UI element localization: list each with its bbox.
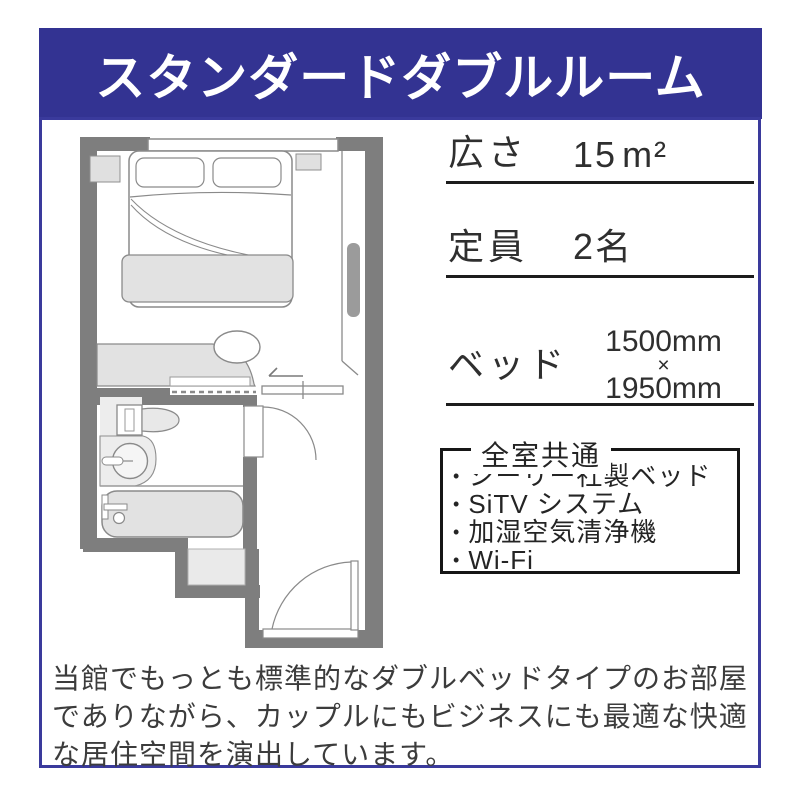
room-info-card: スタンダードダブルルーム <box>0 0 800 800</box>
list-item: •加湿空気清浄機 <box>451 518 737 546</box>
wall-hall-left <box>245 549 259 632</box>
closet-niche <box>188 549 245 585</box>
entrance-door-swing-arc <box>272 562 351 629</box>
spec-row-capacity: 定員 2名 <box>446 230 754 278</box>
bed-foot-cover <box>122 255 293 302</box>
chair <box>214 331 260 363</box>
pillow-left <box>136 158 204 187</box>
wall-right <box>365 137 383 648</box>
wall-bath-bottom <box>83 538 188 552</box>
entrance-door-sill <box>263 629 358 638</box>
toilet-lid-detail <box>125 409 134 431</box>
entrance-door-panel <box>351 561 358 630</box>
common-features-title: 全室共通 <box>471 434 611 474</box>
bathtub <box>102 491 243 537</box>
bed-length: 1950mm <box>586 375 741 403</box>
capacity-value: 2名 <box>573 218 633 270</box>
bathtub-drain <box>114 513 125 524</box>
sink <box>100 436 156 486</box>
window <box>148 139 338 151</box>
closet-door-handle <box>347 243 360 317</box>
description-line: な居住空間を演出しています。 <box>52 736 758 774</box>
double-bed <box>122 151 293 307</box>
nightstand-right <box>296 154 321 170</box>
nightstand-left <box>90 156 120 182</box>
area-value: 15 m² <box>573 134 668 176</box>
toilet-bowl <box>142 408 179 431</box>
sink-faucet <box>102 457 123 465</box>
bed-label: ベッド <box>448 336 568 388</box>
wall-bath-right-lower <box>243 457 257 552</box>
toilet <box>117 405 179 435</box>
bullet-icon: • <box>453 490 460 518</box>
description-line: でありながら、カップルにもビジネスにも最適な快適 <box>52 698 758 736</box>
description-line: 当館でもっとも標準的なダブルベッドタイプのお部屋 <box>52 660 758 698</box>
pillow-right <box>213 158 281 187</box>
room-description: 当館でもっとも標準的なダブルベッドタイプのお部屋 でありながら、カップルにもビジ… <box>52 660 758 774</box>
spec-row-bed: ベッド 1500mm × 1950mm <box>446 328 754 406</box>
bathroom-door-swing-arc <box>263 407 316 460</box>
spec-row-area: 広さ 15 m² <box>446 136 754 184</box>
sliding-door-arrow-icon <box>269 368 303 376</box>
floorplan-diagram <box>80 137 385 648</box>
area-label: 広さ <box>448 124 528 176</box>
bathroom-door-panel <box>244 406 263 457</box>
list-item: •Wi-Fi <box>451 546 737 574</box>
common-features-box: 全室共通 •シーリー社製ベッド •SiTV システム •加湿空気清浄機 •Wi-… <box>440 448 740 574</box>
wall-bath-right-upper <box>243 395 257 407</box>
bullet-icon: • <box>453 462 460 490</box>
desk-drawer <box>170 377 250 386</box>
page-title: スタンダードダブルルーム <box>95 38 706 110</box>
bullet-icon: • <box>453 546 460 574</box>
capacity-label: 定員 <box>448 218 528 270</box>
closet-diagonal-line <box>342 361 358 375</box>
common-features-list: •シーリー社製ベッド •SiTV システム •加湿空気清浄機 •Wi-Fi <box>451 462 737 574</box>
content-card: 広さ 15 m² 定員 2名 ベッド 1500mm × 1950mm 全室共通 … <box>39 117 761 768</box>
bed-width: 1500mm <box>586 328 741 356</box>
list-item: •SiTV システム <box>451 490 737 518</box>
bullet-icon: • <box>453 518 460 546</box>
title-banner: スタンダードダブルルーム <box>39 28 762 119</box>
bathtub-faucet-arm <box>104 504 127 510</box>
wall-left <box>80 137 97 549</box>
bed-size-value: 1500mm × 1950mm <box>586 328 741 403</box>
